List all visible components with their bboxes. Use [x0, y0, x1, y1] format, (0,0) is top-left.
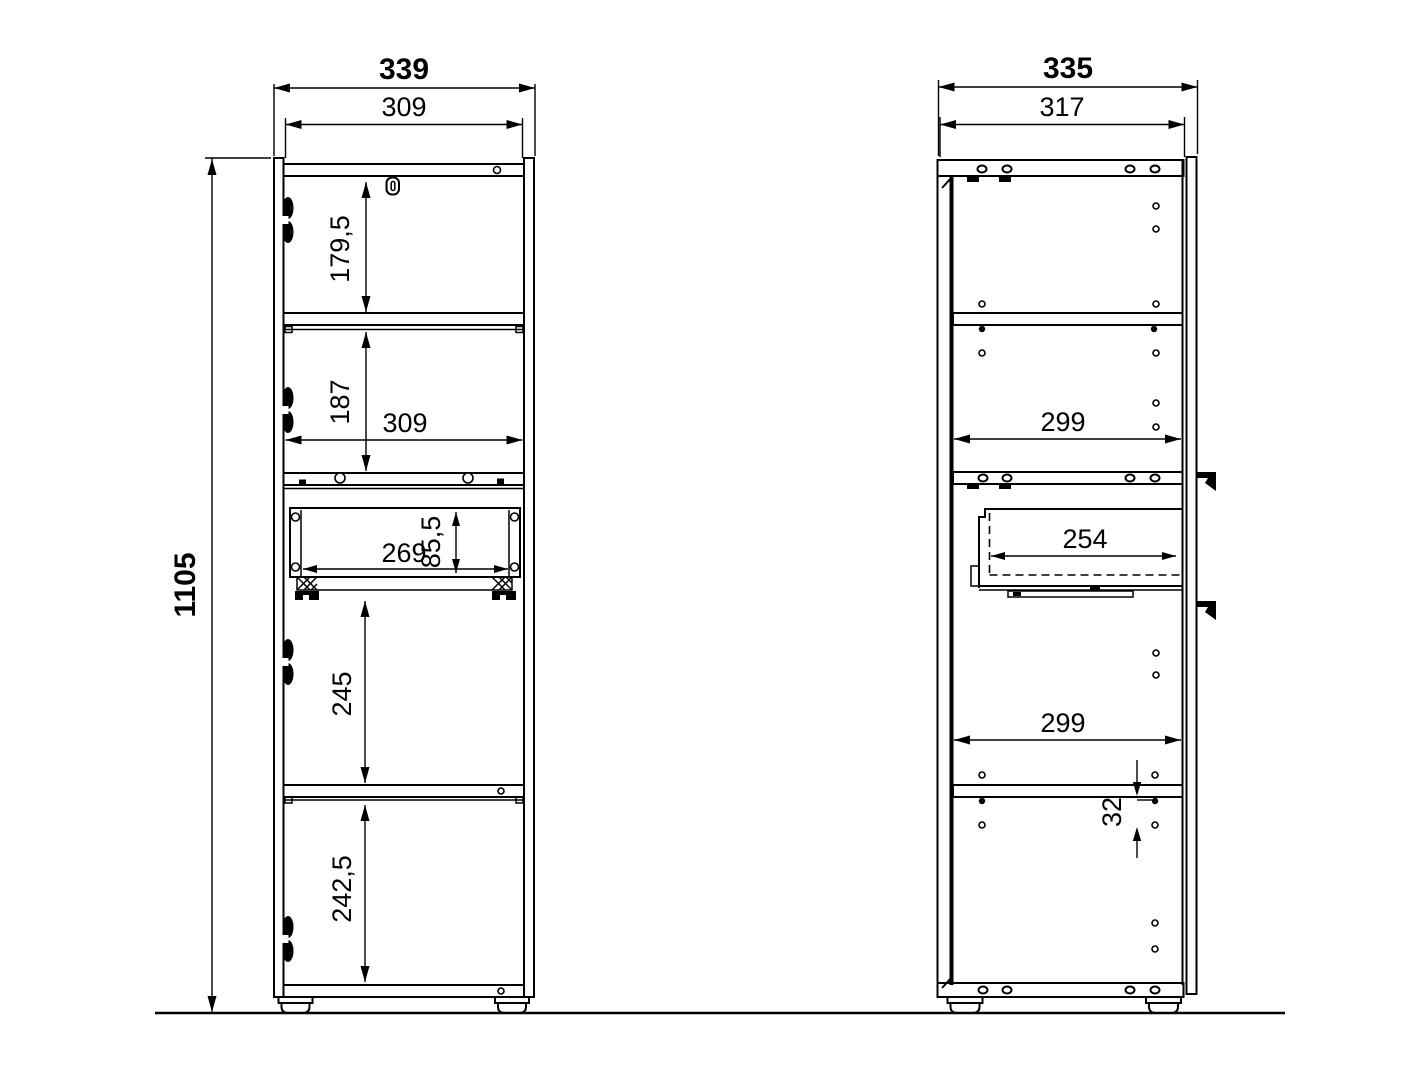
slide-runner [1008, 591, 1133, 597]
dim-label-overall-width: 339 [379, 53, 429, 86]
screw-hole [498, 988, 504, 994]
side-view-dimensions: 335 317 299 254 29 [939, 52, 1198, 858]
shelf-pin-holes [979, 203, 1159, 952]
bottom-panel [938, 983, 1184, 997]
adjustable-foot-left [279, 997, 313, 1013]
top-rail [284, 164, 525, 176]
slide-hatch-right [492, 577, 512, 590]
dim-label-section-1-height: 179,5 [325, 215, 355, 283]
cam-fitting [999, 484, 1011, 489]
dim-label-inner-depth-upper: 299 [1040, 407, 1085, 437]
cam-hole [463, 473, 473, 483]
cam-hole [335, 473, 345, 483]
drawer-screw [292, 563, 300, 571]
bottom-panel [284, 985, 525, 997]
drawer-slides [295, 591, 516, 600]
fixed-shelf-3 [284, 785, 525, 797]
dim-label-section-4-height: 242,5 [327, 855, 357, 923]
dim-label-drawer-inner-depth: 254 [1062, 524, 1107, 554]
top-rail-holes [978, 166, 1160, 173]
furniture-technical-drawing: 339 309 1105 179,5 [0, 0, 1428, 1071]
dim-label-inner-depth-top: 317 [1039, 92, 1084, 122]
dim-section-2-height: 187 [325, 332, 371, 471]
door-hinge [283, 197, 294, 243]
dim-label-hole-pitch: 32 [1097, 797, 1127, 827]
dim-hole-pitch: 32 [1097, 760, 1152, 858]
fixed-shelf-1 [284, 313, 525, 325]
door-panel [1187, 157, 1197, 994]
right-side-panel [524, 158, 534, 997]
dim-label-overall-height: 1105 [169, 552, 202, 617]
dim-label-inner-width-middle: 309 [382, 408, 427, 438]
dim-label-overall-depth: 335 [1043, 52, 1093, 85]
drawer-bottom-rail [297, 577, 512, 590]
drawer-screw [511, 563, 519, 571]
cam-fitting [967, 177, 979, 182]
door-hinge [283, 639, 294, 685]
left-side-panel [274, 158, 284, 997]
screw-hole [494, 167, 501, 174]
drawer-screw [511, 513, 519, 521]
adjustable-foot-right [1146, 997, 1181, 1013]
dim-inner-width-middle: 309 [286, 408, 523, 445]
dim-section-1-height: 179,5 [325, 182, 371, 312]
front-view-dimensions: 339 309 1105 179,5 [169, 53, 535, 1013]
shelf-2-fitting-left [299, 480, 306, 486]
adjustable-foot-right [495, 997, 529, 1013]
rail-2-holes [979, 475, 1160, 482]
door-hinge-arm [1197, 472, 1216, 491]
front-view [274, 158, 534, 1013]
cam-fitting [999, 177, 1011, 182]
dim-inner-depth-lower: 299 [954, 708, 1181, 745]
slide-stop [1013, 592, 1021, 596]
fixed-shelf-1 [953, 313, 1183, 325]
shelf-2-fitting-right [497, 479, 504, 485]
dim-label-section-3-height: 245 [327, 671, 357, 716]
dim-label-inner-width-top: 309 [381, 92, 426, 122]
dim-drawer-inner-width: 269 [303, 538, 508, 573]
slide-bracket [971, 566, 979, 586]
cam-fitting [967, 484, 979, 489]
dim-drawer-inner-height: 85,5 [416, 512, 460, 573]
drawer-screw [292, 513, 300, 521]
dim-section-4-height: 242,5 [327, 805, 370, 982]
dim-drawer-inner-depth: 254 [991, 524, 1176, 560]
dim-label-inner-depth-lower: 299 [1040, 708, 1085, 738]
technical-drawing-page: 339 309 1105 179,5 [0, 0, 1428, 1071]
side-view [938, 157, 1217, 1013]
dim-overall-height: 1105 [169, 158, 271, 1013]
slide-clip [1090, 587, 1100, 590]
door-hinge [283, 387, 294, 433]
dim-label-section-2-height: 187 [325, 379, 355, 424]
fixed-shelf-2 [284, 473, 525, 485]
slide-hatch-left [297, 577, 317, 590]
bottom-panel-holes [979, 987, 1160, 994]
rail-3 [953, 785, 1183, 797]
door-hinge [283, 916, 294, 962]
dim-inner-width-top: 309 [286, 92, 523, 158]
screw-hole [498, 788, 504, 794]
dim-inner-depth-top: 317 [940, 92, 1185, 157]
dim-inner-depth-upper: 299 [954, 407, 1181, 444]
dim-section-3-height: 245 [327, 601, 370, 783]
hanger-keyhole-slot [391, 182, 395, 191]
door-hinge-arm [1197, 601, 1216, 620]
top-rail [938, 160, 1184, 176]
hanger-keyhole [387, 178, 400, 195]
adjustable-foot-left [948, 997, 983, 1013]
dim-label-drawer-inner-height: 85,5 [416, 516, 446, 569]
